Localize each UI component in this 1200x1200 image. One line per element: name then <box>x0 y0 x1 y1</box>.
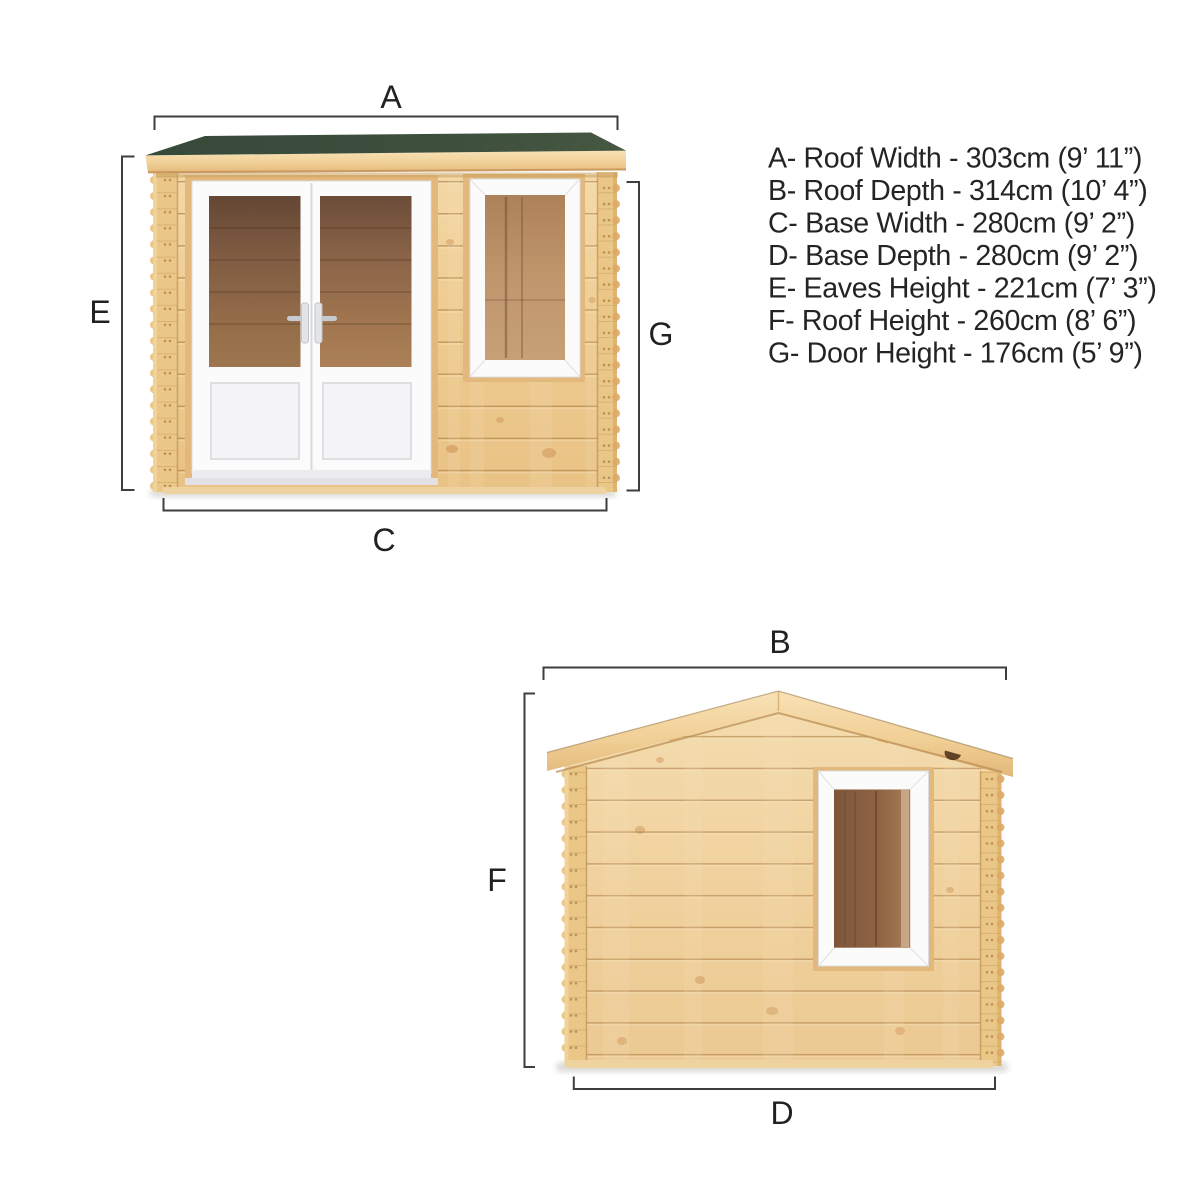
svg-text:E: E <box>89 294 110 330</box>
svg-text:C- Base Width - 280cm (9’ 2”): C- Base Width - 280cm (9’ 2”) <box>768 208 1135 240</box>
svg-text:E- Eaves Height - 221cm (7’ 3”: E- Eaves Height - 221cm (7’ 3”) <box>768 273 1157 305</box>
svg-text:D: D <box>770 1095 793 1131</box>
svg-text:G- Door Height - 176cm (5’ 9”): G- Door Height - 176cm (5’ 9”) <box>768 338 1143 370</box>
svg-text:F: F <box>487 862 507 898</box>
svg-text:B: B <box>769 624 790 660</box>
svg-text:A- Roof Width - 303cm (9’ 11”): A- Roof Width - 303cm (9’ 11”) <box>768 143 1142 175</box>
svg-text:A: A <box>380 79 402 115</box>
svg-text:B- Roof Depth - 314cm (10’ 4”): B- Roof Depth - 314cm (10’ 4”) <box>768 175 1147 207</box>
svg-text:C: C <box>372 522 395 558</box>
svg-text:F- Roof Height - 260cm (8’ 6”): F- Roof Height - 260cm (8’ 6”) <box>768 305 1136 337</box>
svg-text:G: G <box>649 316 674 352</box>
svg-text:D- Base Depth - 280cm (9’ 2”): D- Base Depth - 280cm (9’ 2”) <box>768 240 1138 272</box>
